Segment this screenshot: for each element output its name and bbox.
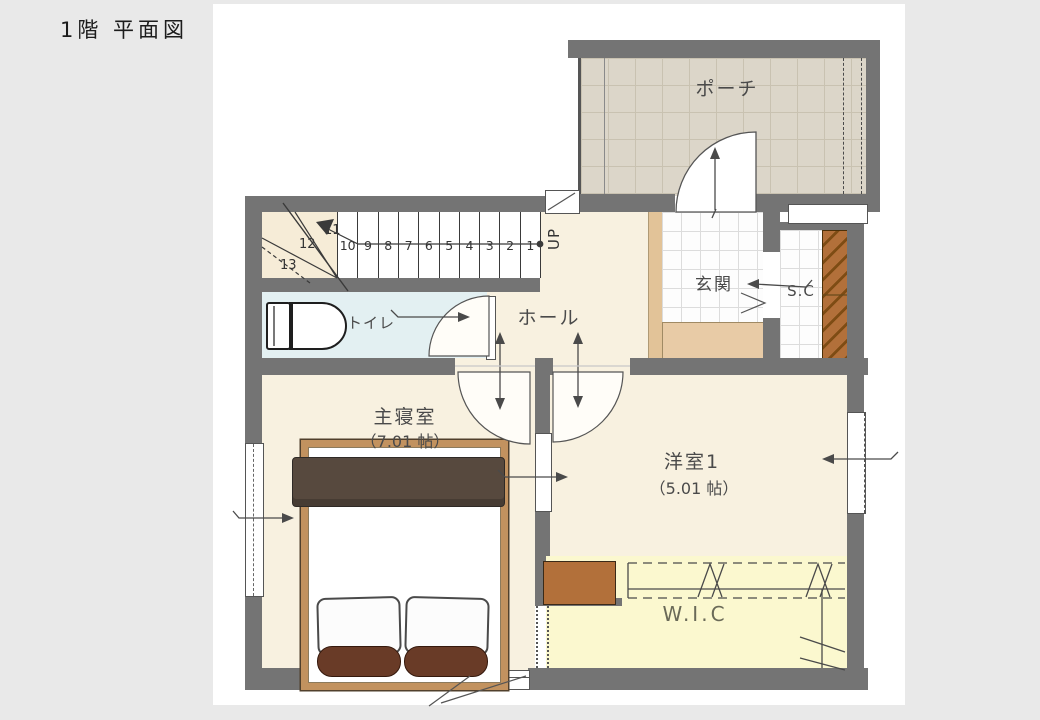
- floor-plan-page: 1階 平面図 1234: [0, 0, 1040, 720]
- stair-tread: 1: [520, 212, 540, 278]
- stair-tread: 5: [439, 212, 459, 278]
- western-room-size: （5.01 帖）: [650, 475, 739, 499]
- wall-hall-center-stub: [535, 358, 553, 375]
- wall-right-lower: [847, 512, 864, 690]
- bedroom-wic-dotted-1: [536, 606, 538, 668]
- bedroom-west-sliding-door: [535, 433, 552, 512]
- page-title: 1階 平面図: [60, 14, 188, 44]
- wall-entrance-sc-bottom: [763, 318, 780, 358]
- wic-dresser: [543, 561, 616, 605]
- wall-porch-bottom-left: [578, 194, 675, 212]
- window-dashed-outerline: [864, 413, 865, 513]
- toilet-label: トイレ: [347, 312, 395, 333]
- entrance-label: 玄関: [695, 270, 733, 295]
- stair-tread: 7: [398, 212, 418, 278]
- bed-bolster-left: [317, 646, 401, 677]
- stair-tread: 8: [378, 212, 398, 278]
- western-room-right-window: [847, 412, 866, 514]
- wall-porch-left-line: [578, 58, 581, 196]
- stair-winder-tread: 12: [299, 237, 316, 252]
- wall-hall-west-right: [630, 358, 868, 375]
- wall-porch-top: [568, 40, 880, 58]
- hall-label: ホール: [517, 303, 580, 330]
- wall-hall-bedroom-left: [262, 358, 455, 375]
- wall-bedroom-west-upper: [535, 375, 550, 433]
- porch-label: ポーチ: [695, 74, 758, 101]
- stairs-up-label: UP: [545, 228, 563, 250]
- shoe-closet-label: S.C: [787, 282, 815, 300]
- porch-dashed-line-2: [861, 58, 862, 194]
- wall-right-upper: [847, 196, 864, 412]
- toilet-door-leaf: [486, 296, 496, 360]
- stair-winder-tread: 11: [324, 223, 341, 238]
- wall-entrance-sc-top: [763, 212, 780, 252]
- master-bedroom-size: （7.01 帖）: [361, 428, 450, 452]
- stair-tread: 6: [418, 212, 438, 278]
- stair-tread: 4: [459, 212, 479, 278]
- master-bedroom-label: 主寝室: [373, 402, 436, 429]
- wic-label: W.I.C: [662, 602, 727, 626]
- bedroom-left-window: [245, 443, 264, 597]
- top-small-window: [545, 190, 580, 214]
- stair-treads: 12345678910: [337, 212, 541, 278]
- wall-stairs-bottom: [262, 278, 540, 292]
- bed-blanket: [292, 457, 505, 507]
- stair-tread: 2: [499, 212, 519, 278]
- porch-dashed-line-1: [843, 58, 844, 194]
- stair-tread: 9: [357, 212, 377, 278]
- sc-window: [788, 204, 868, 224]
- stair-tread: 10: [337, 212, 357, 278]
- entrance-step: [662, 322, 765, 360]
- stair-tread: 3: [479, 212, 499, 278]
- wall-porch-right: [866, 58, 880, 196]
- wall-top-left: [245, 196, 545, 212]
- wall-bottom-right: [528, 668, 868, 690]
- bedroom-wic-dotted-2: [547, 606, 549, 668]
- stair-winder-tread: 13: [280, 258, 297, 273]
- bed-bolster-right: [404, 646, 488, 677]
- wall-bedroom-west-lower: [535, 510, 550, 556]
- shoe-closet-shelf: [822, 230, 849, 360]
- wall-left-upper: [245, 196, 262, 443]
- western-room-label: 洋室1: [664, 447, 720, 474]
- window-dashed-centerline: [253, 444, 254, 596]
- porch-inner-line: [604, 58, 605, 196]
